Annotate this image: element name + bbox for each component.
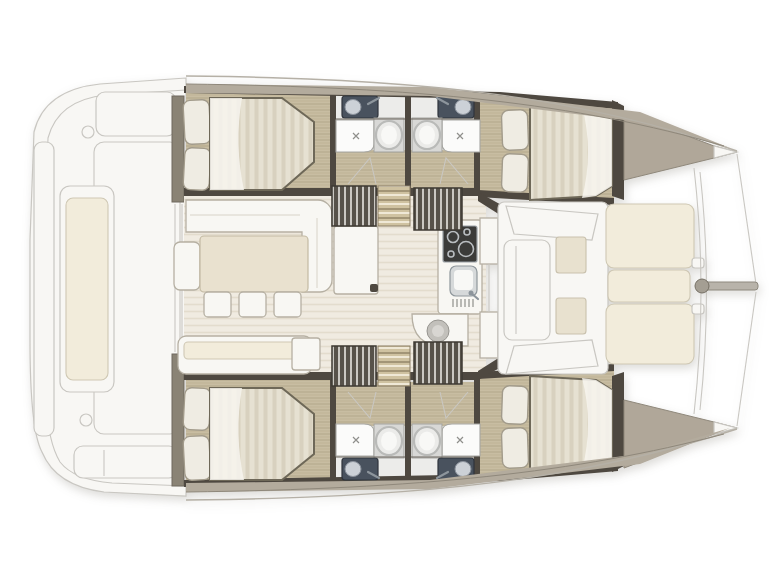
sunpad-cushion: [608, 270, 690, 302]
port-aft-berth: [183, 98, 314, 191]
aft-cockpit: [30, 78, 186, 496]
stool: [274, 292, 301, 317]
sunpad-latch: [692, 258, 704, 268]
floor-plan-canvas: [0, 0, 776, 582]
catamaran-floor-plan: [0, 0, 776, 582]
aft-sofa-cushion: [184, 342, 302, 359]
washbasin-bowl: [381, 432, 397, 451]
stbd-fwd-berth: [501, 376, 612, 472]
seat-pad: [556, 298, 586, 334]
stool: [239, 292, 266, 317]
stbd-wood-steps: [378, 346, 410, 386]
dining-table: [200, 236, 308, 292]
boat: [30, 76, 758, 500]
stbd-aft-stairs: [332, 346, 376, 386]
toilet-lid: [455, 100, 471, 115]
toilet-lid: [345, 100, 361, 115]
port-heads-partition: [405, 93, 411, 190]
aft-bulkhead-port: [172, 96, 184, 202]
port-aft-stairs: [332, 186, 376, 226]
washbasin-bowl: [381, 126, 397, 145]
port-fwd-stairs: [414, 188, 462, 230]
deck-fitting: [82, 126, 94, 138]
port-aft-heads-partition: [330, 92, 336, 192]
sunpad-cushion: [606, 304, 694, 364]
toilet-lid: [455, 462, 471, 477]
shower-pan: [442, 120, 480, 152]
pillow: [183, 387, 211, 430]
cabinet-handle: [370, 284, 378, 292]
port-bow-tip: [714, 146, 737, 158]
shower-pan: [336, 424, 374, 456]
deck-fitting: [80, 414, 92, 426]
fwd-door-wall: [480, 312, 498, 358]
salon-cabinet: [334, 226, 378, 294]
stbd-fwd-stairs: [414, 342, 462, 384]
armchair: [174, 242, 200, 290]
pillow: [501, 154, 528, 193]
sunpad-cushion: [606, 204, 694, 268]
cockpit-bench-cushion: [66, 198, 108, 380]
pillow: [501, 110, 528, 151]
washbasin-bowl: [419, 432, 435, 451]
pillow: [183, 147, 211, 190]
stbd-heads-partition: [405, 382, 411, 480]
pillow: [183, 435, 211, 480]
stbd-aft-heads-partition: [330, 380, 336, 480]
transom-platform: [34, 142, 54, 436]
forward-cockpit: [498, 202, 704, 374]
shower-pan: [336, 120, 374, 152]
pillow: [501, 428, 528, 469]
bridle-line: [737, 292, 756, 426]
bridle-line: [737, 154, 756, 284]
toilet-lid: [345, 462, 361, 477]
aft-bulkhead-starboard: [172, 354, 184, 486]
cockpit-helm-seat: [96, 92, 176, 136]
side-cabinet: [292, 338, 320, 370]
pillow: [501, 386, 528, 425]
galley-sink-basin: [454, 270, 473, 290]
shower-pan: [442, 424, 480, 456]
fwd-bench-center: [504, 240, 550, 340]
sunpad-latch: [692, 304, 704, 314]
bowsprit-fitting: [695, 279, 709, 293]
counter-basin-inner: [432, 325, 444, 337]
cockpit-aft-bench: [74, 446, 178, 478]
washbasin-bowl: [419, 126, 435, 145]
port-hull: [183, 86, 737, 205]
fwd-door-wall: [480, 218, 498, 264]
pillow: [183, 99, 211, 144]
seat-pad: [556, 237, 586, 273]
stool: [204, 292, 231, 317]
port-wood-steps: [378, 186, 410, 226]
